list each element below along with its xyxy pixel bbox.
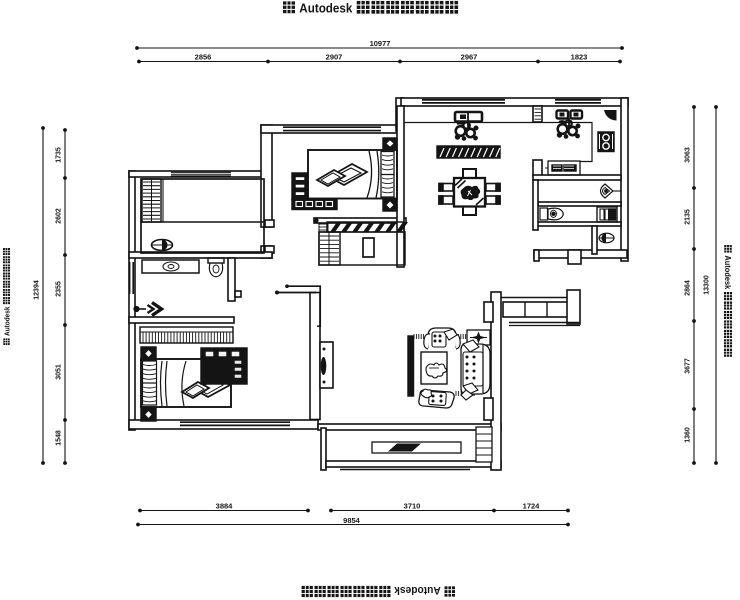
svg-text:13300: 13300 bbox=[704, 275, 711, 295]
svg-text:Autodesk: Autodesk bbox=[2, 307, 11, 336]
svg-text:2907: 2907 bbox=[326, 53, 343, 62]
svg-text:1360: 1360 bbox=[685, 427, 692, 443]
svg-text:9854: 9854 bbox=[343, 516, 361, 525]
svg-text:2135: 2135 bbox=[685, 209, 692, 225]
svg-text:Autodesk: Autodesk bbox=[723, 255, 733, 289]
svg-text:3710: 3710 bbox=[404, 502, 421, 511]
svg-text:1823: 1823 bbox=[571, 53, 588, 62]
svg-text:2856: 2856 bbox=[195, 53, 212, 62]
svg-text:3677: 3677 bbox=[685, 358, 692, 374]
svg-text:10977: 10977 bbox=[370, 39, 391, 48]
svg-text:12394: 12394 bbox=[34, 280, 41, 300]
svg-text:1548: 1548 bbox=[56, 430, 63, 446]
svg-text:3884: 3884 bbox=[216, 502, 234, 511]
svg-text:2967: 2967 bbox=[461, 53, 478, 62]
svg-text:3051: 3051 bbox=[56, 364, 63, 380]
svg-text:Autodesk: Autodesk bbox=[299, 0, 353, 15]
svg-text:1735: 1735 bbox=[56, 147, 63, 163]
svg-text:1724: 1724 bbox=[523, 502, 541, 511]
svg-text:2355: 2355 bbox=[56, 281, 63, 297]
svg-text:2602: 2602 bbox=[56, 208, 63, 224]
svg-text:Autodesk: Autodesk bbox=[394, 584, 441, 596]
svg-text:2864: 2864 bbox=[685, 280, 692, 296]
svg-text:3063: 3063 bbox=[685, 147, 692, 163]
